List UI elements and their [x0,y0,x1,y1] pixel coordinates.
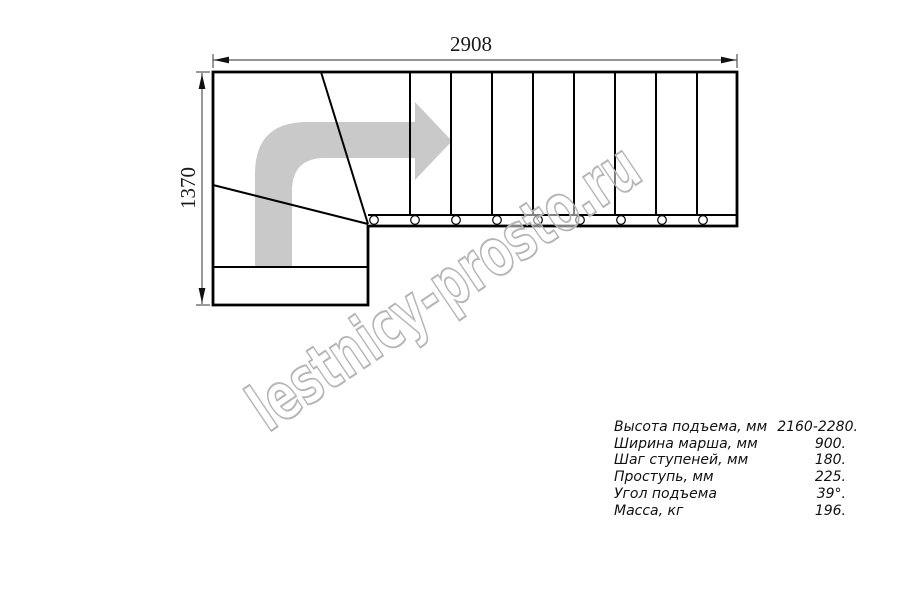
spec-row: Угол подъема39°. [614,486,846,503]
spec-row: Высота подъема, мм2160-2280. [614,419,846,436]
spec-label: Ширина марша, мм [614,436,758,453]
spec-label: Проступь, мм [614,469,714,486]
spec-value: 2160-2280. [767,419,858,436]
spec-row: Масса, кг196. [614,503,846,520]
spec-row: Проступь, мм225. [614,469,846,486]
spec-value: 900. [805,436,846,453]
spec-row: Ширина марша, мм900. [614,436,846,453]
width-dimension-label: 2908 [450,32,492,56]
spec-value: 180. [805,452,846,469]
stair-plan-canvas: 2908 1370 lestnicy-prosto.ru Высота подъ… [0,0,900,600]
watermark-text: lestnicy-prosto.ru [234,128,654,446]
spec-label: Высота подъема, мм [614,419,767,436]
spec-value: 225. [805,469,846,486]
width-dimension: 2908 [213,32,737,68]
spec-value: 196. [805,503,846,520]
height-dimension: 1370 [176,72,210,305]
spec-label: Угол подъема [614,486,717,503]
spec-row: Шаг ступеней, мм180. [614,452,846,469]
spec-label: Масса, кг [614,503,683,520]
spec-label: Шаг ступеней, мм [614,452,748,469]
spec-value: 39°. [807,486,846,503]
curved-right-arrow-icon [255,102,452,267]
specs-table: Высота подъема, мм2160-2280.Ширина марша… [614,419,846,519]
height-dimension-label: 1370 [176,167,200,209]
